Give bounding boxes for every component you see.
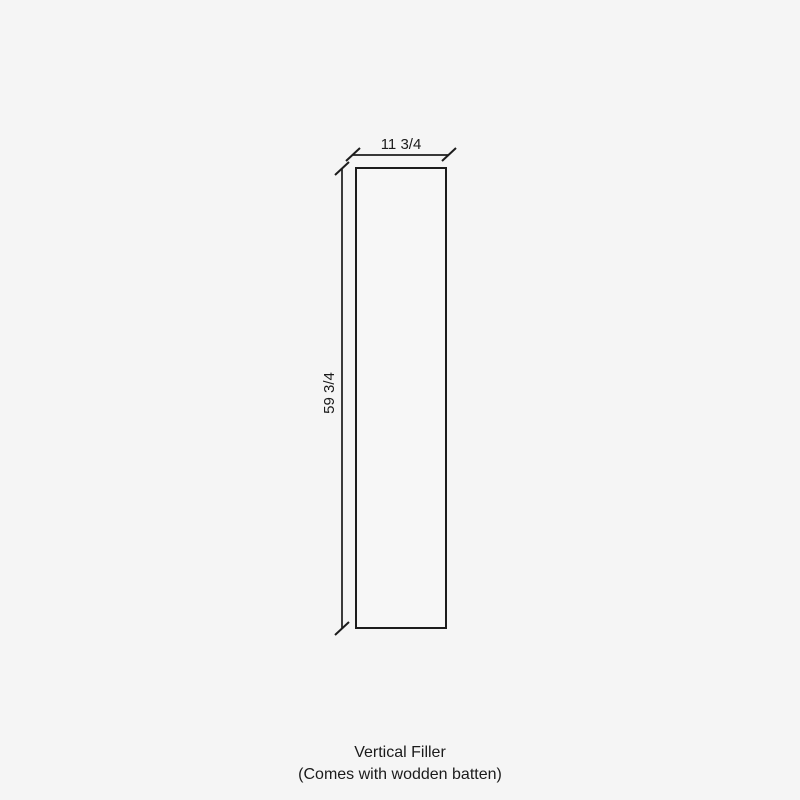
- height-dimension-label: 59 3/4: [321, 372, 338, 414]
- height-dimension: 59 3/4: [321, 162, 349, 635]
- technical-drawing: 11 3/4 59 3/4: [0, 0, 800, 800]
- width-dimension-label: 11 3/4: [381, 136, 422, 153]
- width-dimension: 11 3/4: [346, 136, 456, 161]
- product-title: Vertical Filler: [0, 742, 800, 764]
- product-diagram-canvas: 11 3/4 59 3/4 Vertical Filler (Comes wit…: [0, 0, 800, 800]
- product-subtitle: (Comes with wodden batten): [0, 764, 800, 786]
- filler-panel-outline: [356, 168, 446, 628]
- product-caption: Vertical Filler (Comes with wodden batte…: [0, 742, 800, 786]
